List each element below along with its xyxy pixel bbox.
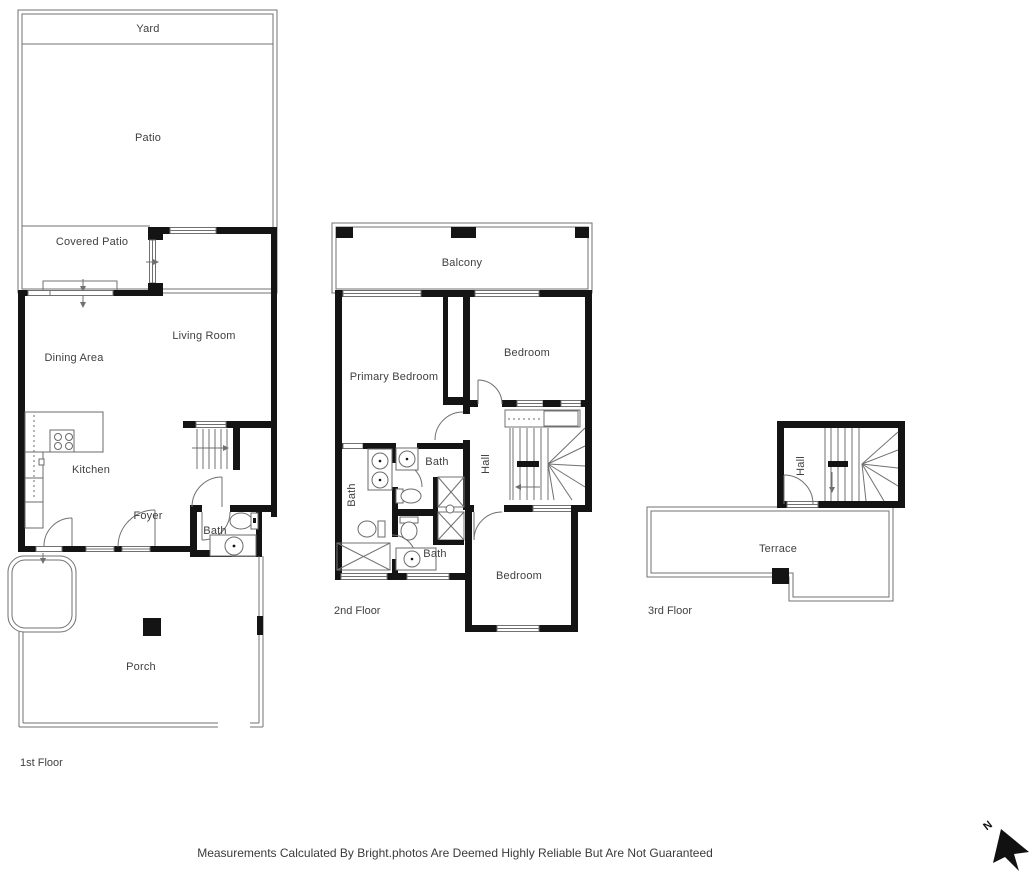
room-label-bedroom-lower: Bedroom (496, 570, 542, 582)
room-label-patio: Patio (135, 132, 161, 144)
disclaimer-text: Measurements Calculated By Bright.photos… (197, 846, 713, 860)
room-label-living-room: Living Room (172, 330, 235, 342)
floor3-linework (640, 405, 915, 620)
room-label-covered-patio: Covered Patio (56, 236, 128, 248)
room-label-kitchen: Kitchen (72, 464, 110, 476)
room-label-hall-f2: Hall (480, 454, 492, 474)
floor-label-2nd: 2nd Floor (334, 605, 380, 617)
room-label-bath-f1: Bath (203, 525, 226, 537)
room-label-hall-f3: Hall (795, 456, 807, 476)
room-label-bedroom-upper: Bedroom (504, 347, 550, 359)
north-arrow-icon (968, 810, 1032, 872)
floorplan-canvas: Yard Patio Covered Patio Living Room Din… (0, 0, 1032, 872)
floor2-linework (325, 215, 595, 645)
floor-label-1st: 1st Floor (20, 757, 63, 769)
room-label-dining-area: Dining Area (44, 352, 103, 364)
room-label-bath-lower: Bath (423, 548, 446, 560)
room-label-foyer: Foyer (133, 510, 162, 522)
room-label-yard: Yard (136, 23, 159, 35)
room-label-terrace: Terrace (759, 543, 797, 555)
room-label-primary-bedroom: Primary Bedroom (350, 371, 439, 383)
room-label-porch: Porch (126, 661, 156, 673)
floor1-linework (0, 0, 290, 745)
room-label-bath-middle: Bath (425, 456, 448, 468)
room-label-bath-left: Bath (346, 483, 358, 506)
floor-label-3rd: 3rd Floor (648, 605, 692, 617)
room-label-balcony: Balcony (442, 257, 483, 269)
